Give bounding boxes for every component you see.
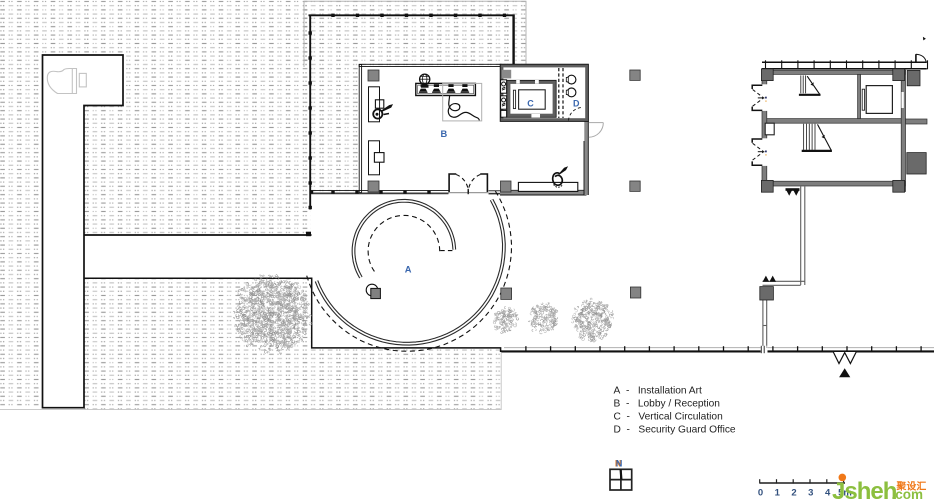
svg-text:3: 3 — [808, 488, 813, 499]
svg-text:C: C — [527, 98, 534, 108]
svg-text:1: 1 — [775, 488, 781, 499]
svg-text:Jsheh: Jsheh — [832, 478, 897, 503]
svg-text:A: A — [405, 264, 412, 274]
svg-text:2: 2 — [791, 488, 796, 499]
svg-text:B - Lobby / Reception: B - Lobby / Reception — [614, 399, 720, 410]
svg-text:N: N — [616, 459, 623, 469]
svg-text:4: 4 — [825, 488, 831, 499]
svg-text:0: 0 — [758, 488, 763, 499]
svg-text:A - Installation Art: A - Installation Art — [614, 386, 702, 397]
svg-text:D: D — [573, 98, 580, 108]
svg-text:聚设汇: 聚设汇 — [896, 480, 927, 493]
svg-text:D - Security Guard Office: D - Security Guard Office — [614, 425, 736, 436]
svg-text:B: B — [441, 129, 448, 139]
svg-text:C - Vertical Circulation: C - Vertical Circulation — [614, 412, 723, 423]
